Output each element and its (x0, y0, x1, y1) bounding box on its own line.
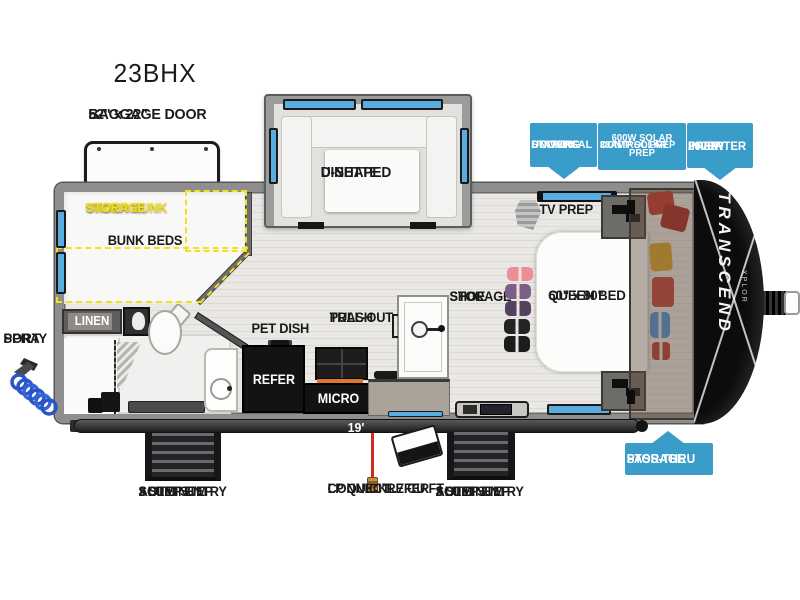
linen-label: LINEN (64, 314, 119, 328)
bottom-window-small (388, 411, 443, 417)
cooktop (315, 347, 368, 380)
bunk-window (56, 210, 66, 248)
floorplan-title: 23BHX (98, 60, 212, 88)
spray-port-hose-icon (6, 352, 60, 416)
trash-bracket (392, 314, 398, 338)
badge-solar-prep: 600W SOLAR PREP30AMP SOLARCONTROL PREP (598, 123, 686, 170)
shoe-pair (505, 301, 531, 316)
exterior-refer-door (397, 442, 441, 466)
baggage-door-hinge (204, 147, 208, 151)
awning-label: 19' AWNING (321, 420, 391, 450)
bunk-beds-label: BUNK BEDS (102, 234, 188, 248)
refrigerator: REFER (242, 345, 305, 413)
shoe-pair (504, 319, 530, 334)
under-bunk-storage-outline (185, 190, 247, 252)
wardrobe-handle (612, 205, 628, 214)
dinette-window (283, 99, 356, 110)
badge-universal-docking-pointer (547, 166, 581, 179)
pass-thru-latch (627, 390, 635, 404)
brand-logo: TRANSCEND (714, 192, 734, 412)
entry-steps-left (145, 433, 221, 481)
slide-foot (298, 222, 324, 229)
microwave: MICRO (303, 383, 373, 414)
shoe-pair (505, 284, 531, 299)
badge-pass-thru-storage: PASS-THRUSTORAGE (625, 443, 713, 475)
baggage-door-hinge (97, 147, 101, 151)
bunk-outline-bottom (56, 301, 202, 303)
shower-mat (128, 401, 205, 413)
shoe-pair (504, 336, 530, 352)
toilet-bowl (148, 310, 182, 355)
baggage-door-hinge (150, 147, 154, 151)
wardrobe-handle (612, 379, 628, 388)
bath-faucet (227, 386, 232, 391)
refer-label: REFER (252, 372, 294, 387)
entry-step-well-tread (463, 405, 477, 414)
shower-fixture (101, 392, 120, 412)
front-cap: TRANSCEND XPLOR (694, 180, 764, 424)
sink-faucet-knob (438, 325, 445, 332)
dinette-slideout: U-SHAPEDDINETTE (264, 94, 472, 228)
lp-quick-connect-line (371, 433, 374, 479)
entry-step-well-tread (480, 404, 512, 415)
dinette-bench-right (426, 116, 457, 218)
pass-thru-latch (627, 200, 635, 214)
dinette-window (269, 128, 278, 184)
sink-handle (411, 321, 428, 338)
badge-universal-docking: UNIVERSALDOCKINGSTATION (530, 123, 597, 167)
tv-prep-label: TV PREP (539, 203, 592, 217)
floorplan-diagram: 23BHX 52" x 22"BAGGAGE DOOR LINEN UNDER … (0, 0, 800, 600)
pet-dish-label: PET DISH (252, 322, 309, 336)
badge-inverter-prep-pointer (703, 167, 737, 180)
micro-label: MICRO (317, 391, 358, 406)
brand-series-logo: XPLOR (740, 270, 747, 350)
slide-foot (410, 222, 436, 229)
hitch-jack-pad (784, 291, 800, 315)
dinette-bench-left (281, 116, 312, 218)
bunk-window (56, 252, 66, 294)
bath-cabinet-bowl (132, 312, 145, 330)
badge-inverter-prep: 2000WINVERTERPREP (687, 123, 753, 168)
shoe-pair (507, 267, 533, 281)
pass-thru-overlay (629, 188, 700, 420)
dinette-window (361, 99, 443, 110)
awning-end-knob (636, 420, 648, 432)
dinette-window (460, 128, 469, 184)
entry-steps-right (447, 432, 515, 480)
